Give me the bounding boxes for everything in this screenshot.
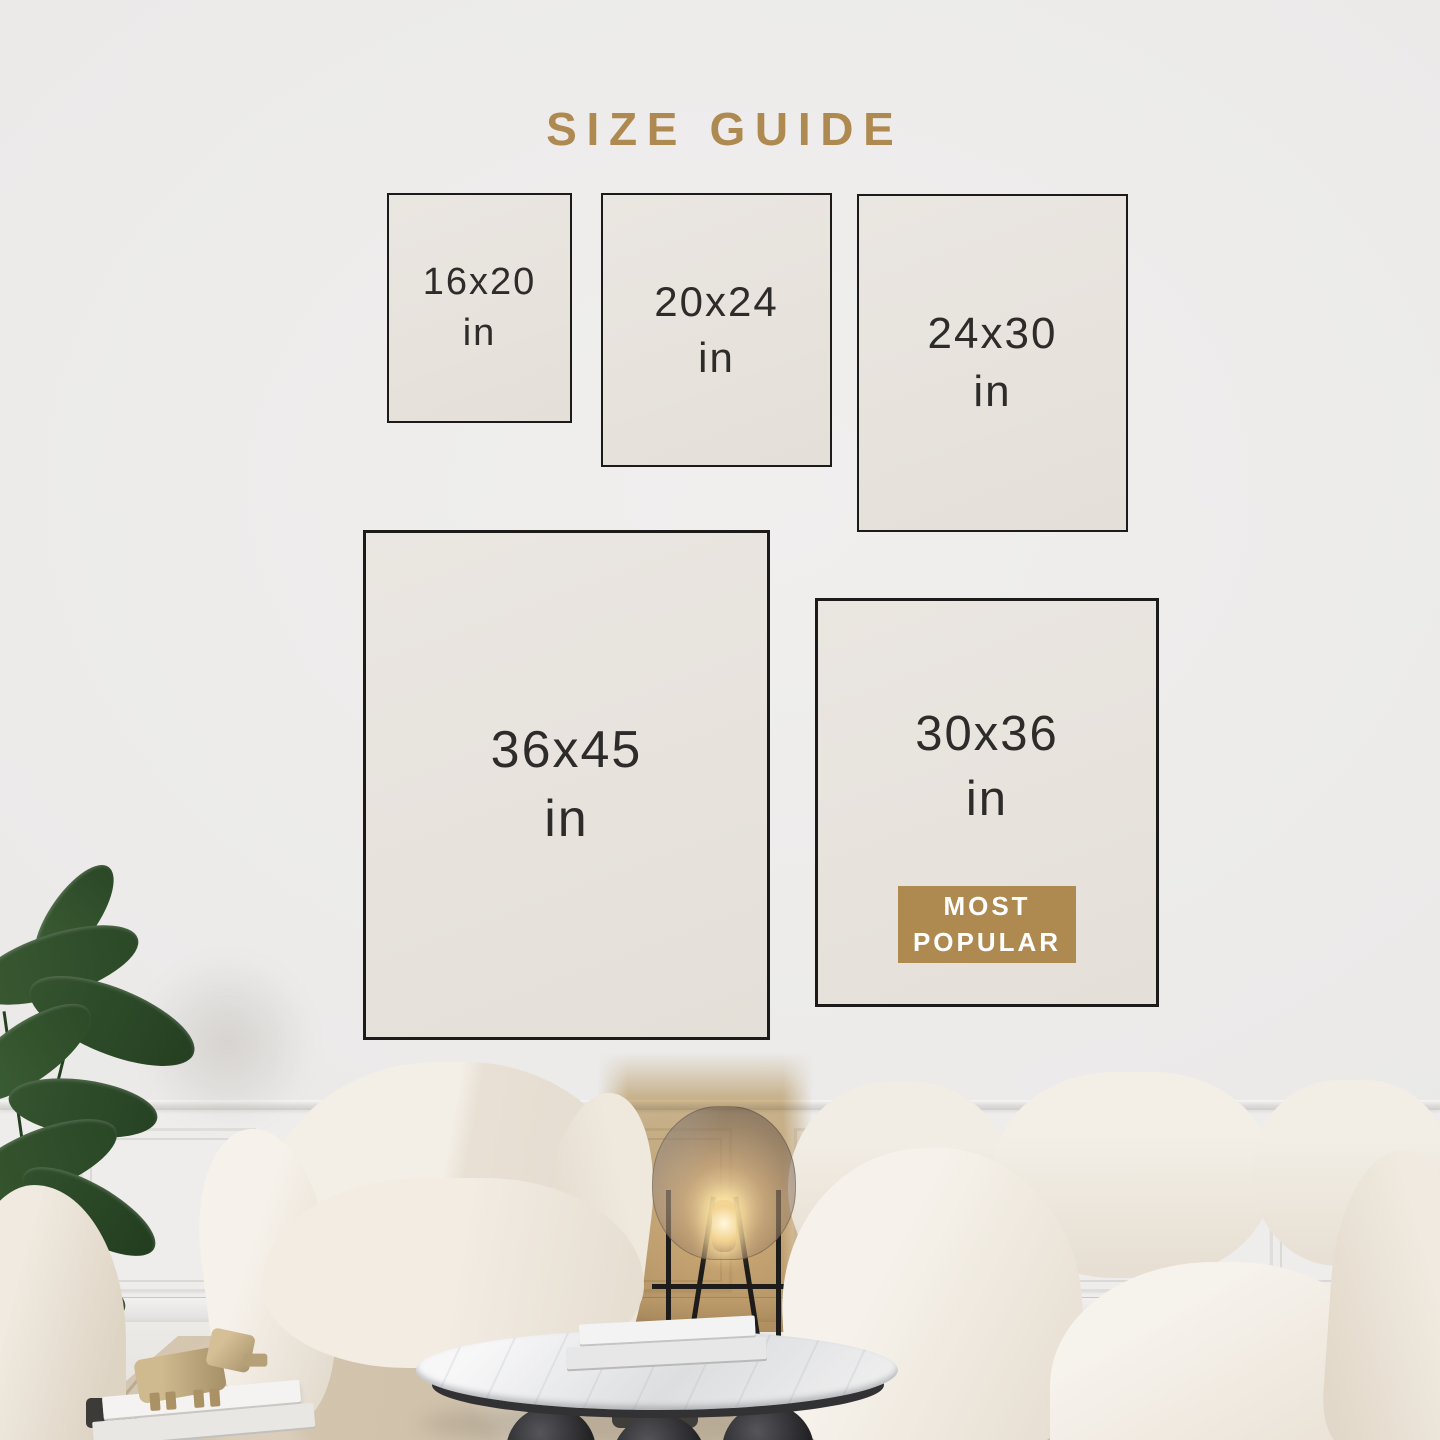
size-guide-image: SIZE GUIDE 16x20 in 20x24 in 24x30 in 36…: [0, 0, 1440, 1440]
size-option-16x20: 16x20 in: [387, 193, 572, 423]
badge-line: POPULAR: [913, 925, 1061, 960]
size-label: 24x30 in: [928, 306, 1058, 421]
size-option-20x24: 20x24 in: [601, 193, 832, 467]
size-option-36x45: 36x45 in: [363, 530, 770, 1040]
dog-leg: [165, 1391, 176, 1410]
badge-line: MOST: [943, 889, 1030, 924]
dog-leg: [193, 1389, 204, 1408]
size-unit: in: [973, 364, 1011, 420]
most-popular-badge: MOST POPULAR: [898, 886, 1076, 963]
page-title: SIZE GUIDE: [0, 102, 1440, 156]
size-dimensions: 30x36: [915, 703, 1059, 766]
size-label: 36x45 in: [491, 717, 643, 852]
lamp-bulb: [712, 1200, 736, 1252]
size-dimensions: 16x20: [423, 258, 537, 307]
size-label: 16x20 in: [423, 258, 537, 357]
size-unit: in: [966, 768, 1008, 831]
size-label: 20x24 in: [654, 275, 778, 385]
dog-snout: [243, 1354, 267, 1367]
size-label: 30x36 in: [915, 703, 1059, 830]
size-unit: in: [463, 309, 497, 358]
dog-leg: [149, 1392, 160, 1411]
size-unit: in: [544, 786, 588, 853]
size-option-30x36: 30x36 in MOST POPULAR: [815, 598, 1159, 1007]
size-dimensions: 24x30: [928, 306, 1058, 362]
size-dimensions: 36x45: [491, 717, 643, 784]
size-unit: in: [698, 331, 735, 385]
table-book-stack: [565, 1315, 772, 1376]
size-option-24x30: 24x30 in: [857, 194, 1128, 532]
dog-leg: [209, 1388, 220, 1407]
wooden-dog-sculpture: [116, 1331, 271, 1413]
lamp-crossbar: [652, 1284, 794, 1289]
size-dimensions: 20x24: [654, 275, 778, 329]
